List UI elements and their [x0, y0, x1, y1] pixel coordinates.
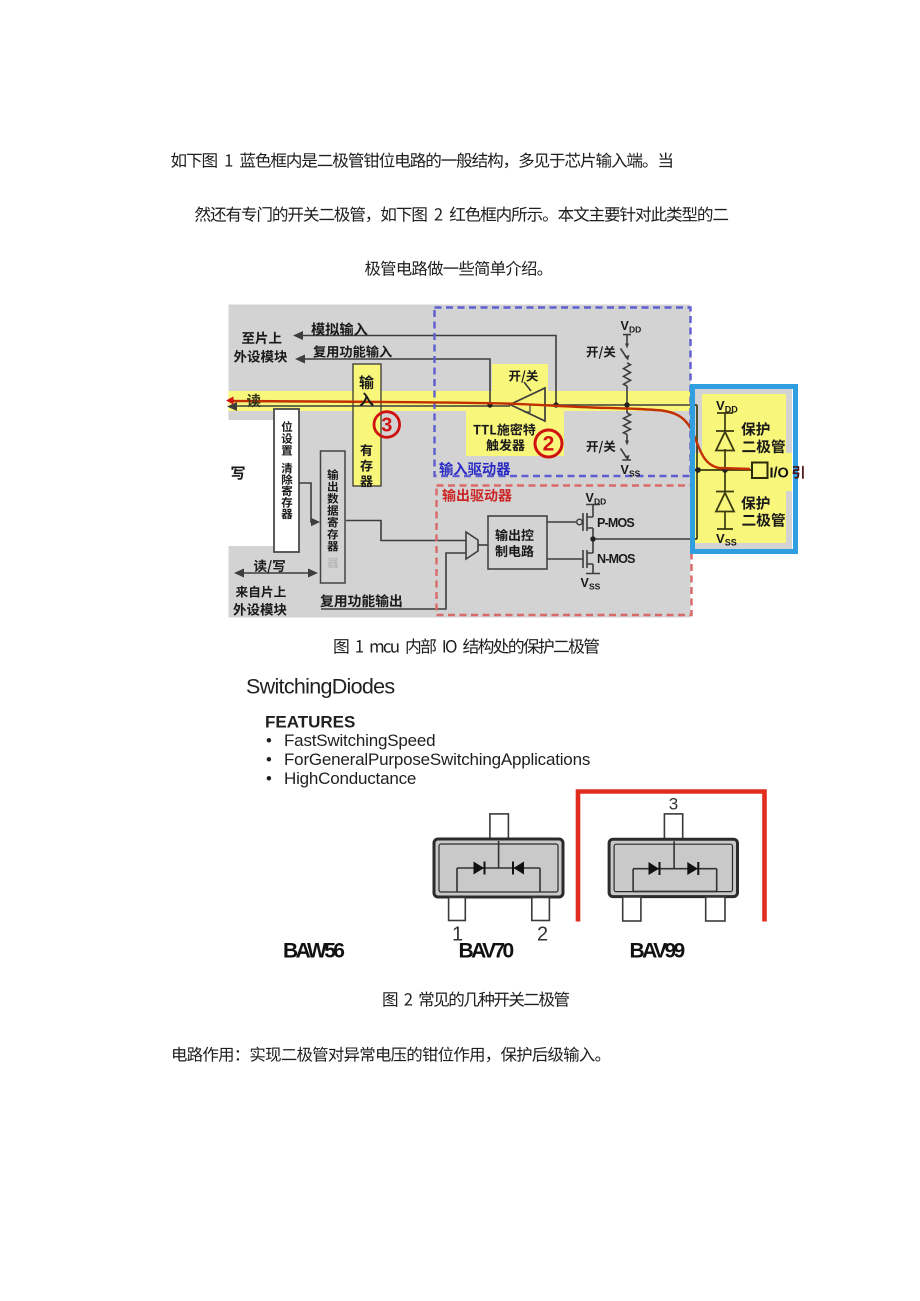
- svg-text:•: •: [266, 751, 272, 769]
- svg-text:FastSwitchingSpeed: FastSwitchingSpeed: [284, 731, 435, 750]
- svg-text:P-MOS: P-MOS: [597, 516, 634, 530]
- svg-text:I/O: I/O: [770, 466, 789, 482]
- svg-text:3: 3: [669, 795, 678, 814]
- svg-text:N-MOS: N-MOS: [597, 552, 635, 566]
- svg-text:2: 2: [543, 433, 555, 456]
- svg-text:•: •: [266, 770, 272, 788]
- svg-text:V: V: [716, 531, 725, 546]
- svg-text:2: 2: [537, 924, 548, 946]
- svg-text:HighConductance: HighConductance: [284, 769, 416, 788]
- svg-text:ForGeneralPurposeSwitchingAppl: ForGeneralPurposeSwitchingApplications: [284, 750, 590, 769]
- svg-text:•: •: [266, 732, 272, 750]
- svg-text:DD: DD: [629, 325, 641, 335]
- svg-text:SS: SS: [725, 538, 737, 548]
- svg-text:3: 3: [381, 415, 392, 437]
- svg-text:DD: DD: [725, 405, 738, 415]
- svg-text:SwitchingDiodes: SwitchingDiodes: [246, 675, 394, 699]
- svg-text:FEATURES: FEATURES: [265, 713, 355, 732]
- svg-text:V: V: [716, 398, 725, 413]
- svg-text:SS: SS: [629, 469, 641, 479]
- svg-text:SS: SS: [589, 582, 601, 592]
- svg-text:BAV70: BAV70: [459, 940, 514, 963]
- svg-text:BAV99: BAV99: [630, 940, 685, 963]
- svg-text:DD: DD: [594, 497, 606, 507]
- svg-text:BAW56: BAW56: [283, 940, 344, 963]
